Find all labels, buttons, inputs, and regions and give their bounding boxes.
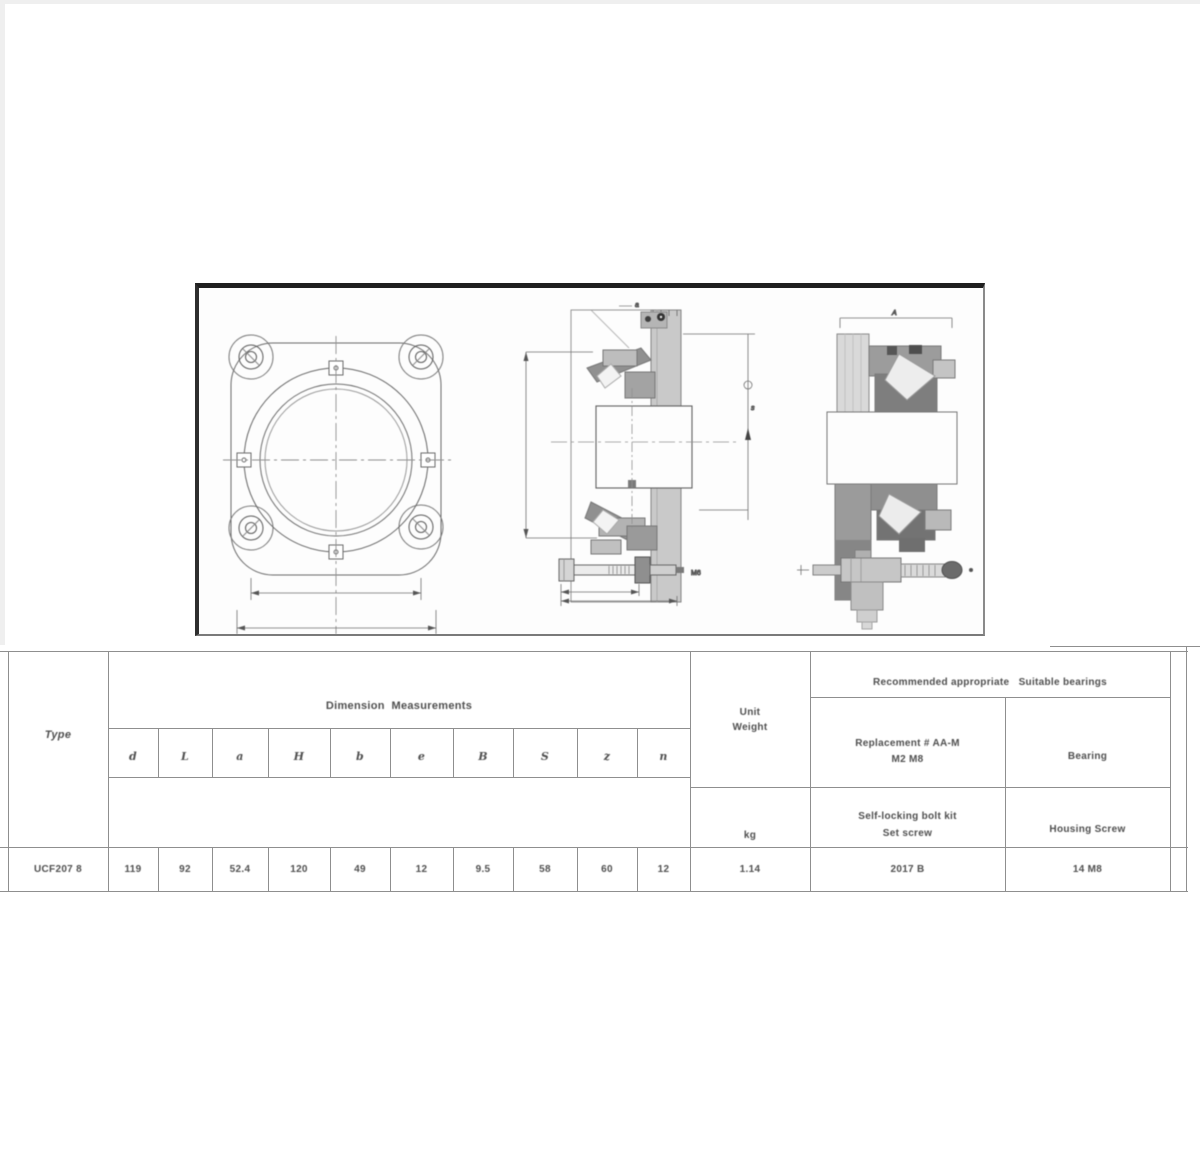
dim-col-b: b bbox=[330, 742, 390, 772]
dim-col-S: S bbox=[513, 742, 577, 772]
dim-col-L: L bbox=[158, 742, 212, 772]
dim-value-b: 49 bbox=[330, 858, 390, 882]
dim-value-S: 58 bbox=[513, 858, 577, 882]
bolt-header-line1: Replacement # AA-M bbox=[810, 737, 1005, 751]
dim-value-L: 92 bbox=[158, 858, 212, 882]
dim-col-B: B bbox=[453, 742, 513, 772]
bolt-header-line2: M2 M8 bbox=[810, 753, 1005, 767]
bolt-value: 2017 B bbox=[810, 858, 1005, 882]
dim-col-n: n bbox=[637, 742, 690, 772]
dim-col-e: e bbox=[390, 742, 453, 772]
bearing-column-header: Bearing bbox=[1005, 749, 1170, 765]
dim-value-B: 9.5 bbox=[453, 858, 513, 882]
matching-group-header: Recommended appropriate Suitable bearing… bbox=[810, 675, 1170, 691]
weight-unit-label: kg bbox=[690, 828, 810, 844]
dim-value-d: 119 bbox=[108, 858, 158, 882]
dim-col-H: H bbox=[268, 742, 330, 772]
weight-header-line2: Weight bbox=[690, 721, 810, 735]
bolt-label-line1: Self-locking bolt kit bbox=[810, 810, 1005, 824]
dim-value-a: 52.4 bbox=[212, 858, 268, 882]
bolt-label-line2: Set screw bbox=[810, 827, 1005, 841]
type-value: UCF207 8 bbox=[8, 858, 108, 882]
weight-value: 1.14 bbox=[690, 858, 810, 882]
dim-col-z: z bbox=[577, 742, 637, 772]
dim-value-H: 120 bbox=[268, 858, 330, 882]
dim-col-d: d bbox=[108, 742, 158, 772]
dim-value-n: 12 bbox=[637, 858, 690, 882]
bearing-column-label: Housing Screw bbox=[1005, 822, 1170, 838]
dim-col-a: a bbox=[212, 742, 268, 772]
dim-value-z: 60 bbox=[577, 858, 637, 882]
datasheet-page: s a M6 bbox=[0, 0, 1200, 1165]
dim-value-e: 12 bbox=[390, 858, 453, 882]
dimensions-group-header: Dimension Measurements bbox=[108, 696, 690, 716]
type-column-header: Type bbox=[8, 722, 108, 748]
bearing-value: 14 M8 bbox=[1005, 858, 1170, 882]
weight-header-line1: Unit bbox=[690, 706, 810, 720]
